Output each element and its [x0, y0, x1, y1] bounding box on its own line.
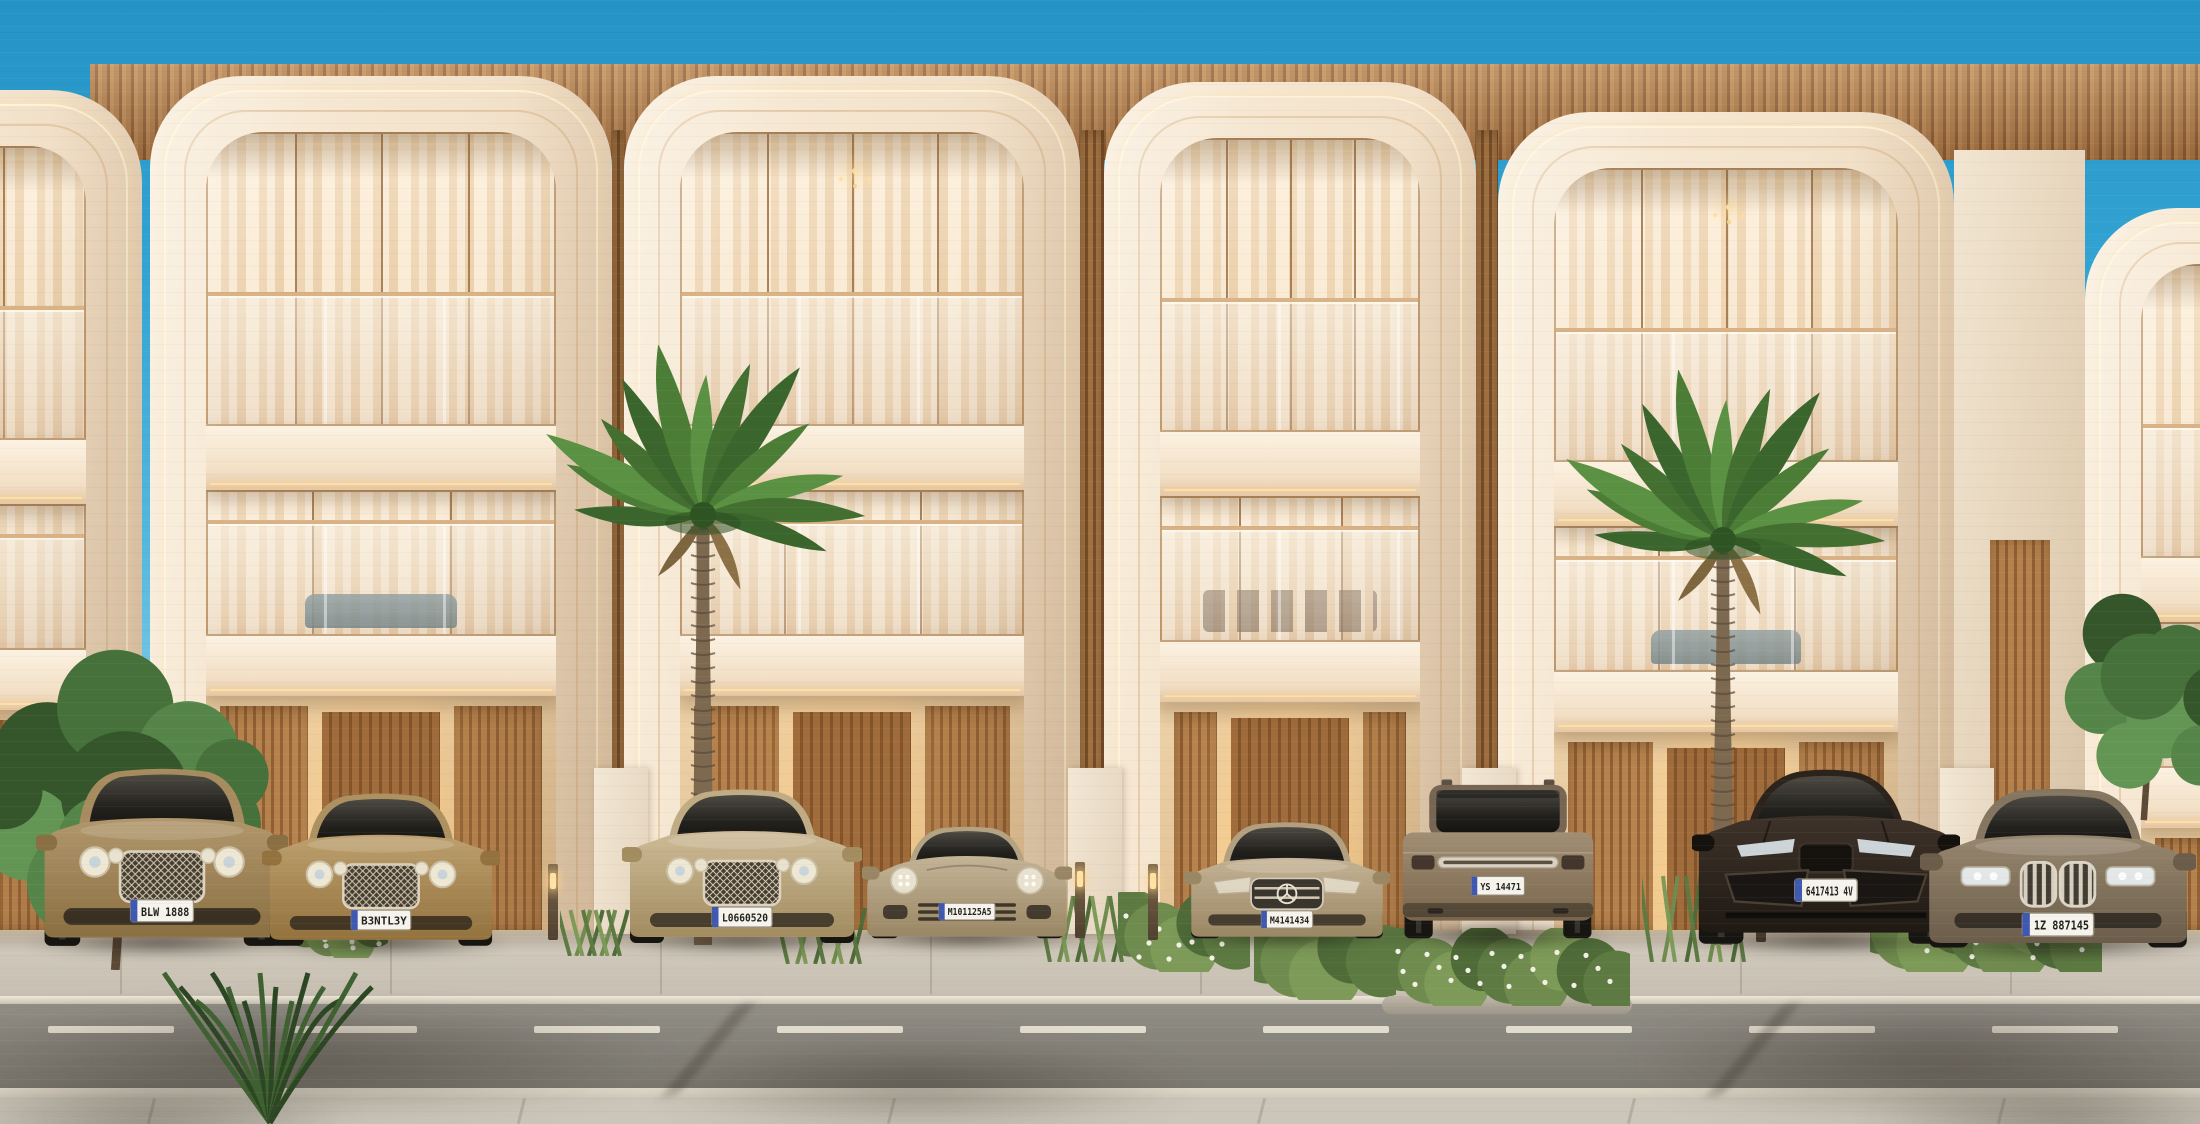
scene-architectural-render: BLW 1888 B3NTL3Y: [0, 0, 2200, 1124]
foreground-plant-svg: [150, 955, 390, 1124]
foreground-layer: [0, 0, 2200, 1124]
foreground-grasses: [150, 955, 390, 1124]
